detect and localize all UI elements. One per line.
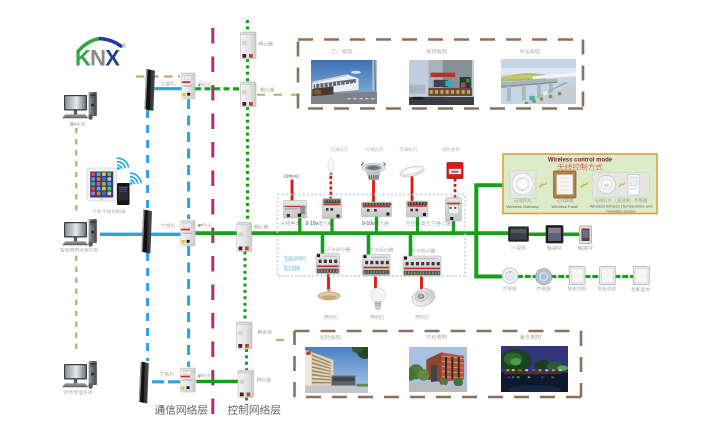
svg-text:Wireless Panel: Wireless Panel xyxy=(551,204,578,209)
svg-text:Wireless control mode: Wireless control mode xyxy=(548,158,613,164)
svg-text:IP: IP xyxy=(197,373,202,379)
svg-text:0-10v: 0-10v xyxy=(362,221,375,227)
svg-text:BA: BA xyxy=(70,122,77,127)
svg-text:®: ® xyxy=(122,43,127,50)
svg-text:0-10v: 0-10v xyxy=(306,221,319,227)
svg-text:220vAC: 220vAC xyxy=(283,173,300,178)
svg-text:IP: IP xyxy=(198,223,203,229)
svg-text:humidity) sensor: humidity) sensor xyxy=(606,208,636,213)
svg-text:Wireless Gateway: Wireless Gateway xyxy=(506,204,538,209)
svg-text:KNX: KNX xyxy=(75,46,120,71)
svg-text:IP: IP xyxy=(198,83,203,89)
